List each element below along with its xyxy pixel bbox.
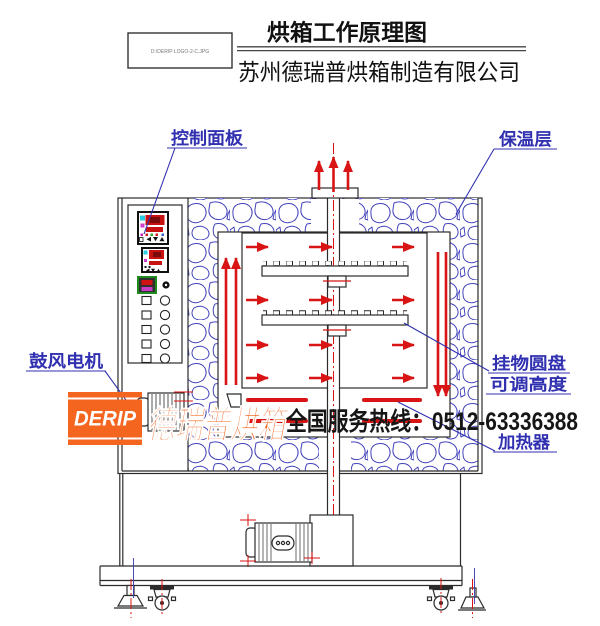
temperature-controller-2 [142,248,168,272]
diagram-title: 烘箱工作原理图 [267,20,427,46]
indicator-magenta [141,224,145,228]
logo-text: DERIP [74,408,137,431]
disc2-teeth [263,310,407,315]
title-block: D:\DERIP LOGO-2-C.JPG 烘箱工作原理图 苏州德瑞普烘箱制造有… [128,20,526,86]
hanging-disc-label: 挂物圆盘 [492,353,567,373]
company-name: 苏州德瑞普烘箱制造有限公司 [238,59,520,85]
title-block-file-label: D:\DERIP LOGO-2-C.JPG [151,49,209,55]
logo-bar-top [68,392,142,398]
right-caster [428,578,455,616]
adjustable-height-label: 可调高度 [490,374,568,394]
insulation-label: 保温层 [498,129,552,149]
base-frame [100,558,486,618]
counter-meter [138,277,156,293]
left-caster [149,579,176,616]
disc2-plate [262,315,408,325]
oven-principle-diagram: D:\DERIP LOGO-2-C.JPG 烘箱工作原理图 苏州德瑞普烘箱制造有… [0,0,600,626]
disc1-teeth [263,261,407,266]
callout-blower-motor: 鼓风电机 [26,351,131,407]
indicator-cyan [140,216,145,221]
disc1-plate [262,266,408,276]
blower-motor-label: 鼓风电机 [29,351,103,371]
exhaust-arrows [319,157,348,192]
hotline-watermark: 全国服务热线：0512-63336388 [285,407,578,436]
left-foot [114,558,147,618]
drive-motor [246,523,312,562]
control-panel-label: 控制面板 [171,128,244,148]
derip-logo: DERIP [68,392,142,445]
logo-bar-bottom [68,440,142,446]
brand-watermark: 德瑞普烘箱 [147,405,289,447]
temperature-controller-1 [138,212,168,244]
drive-unit [120,474,461,568]
diagram-canvas: D:\DERIP LOGO-2-C.JPG 烘箱工作原理图 苏州德瑞普烘箱制造有… [0,0,600,626]
